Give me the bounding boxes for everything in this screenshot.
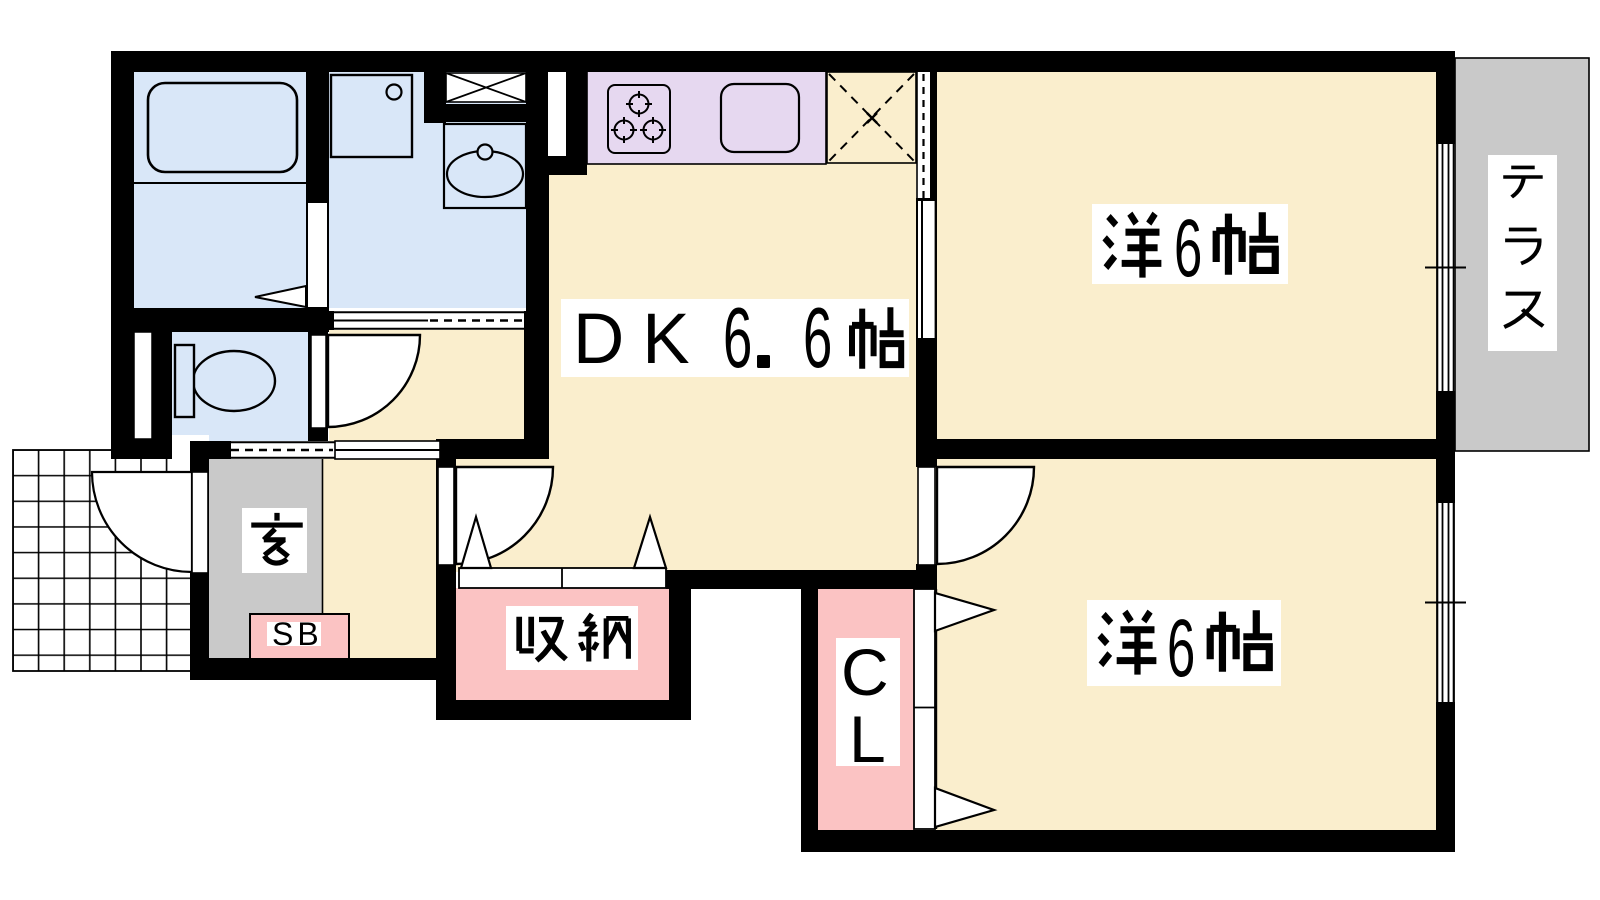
svg-text:SB: SB <box>272 616 323 652</box>
svg-text:6: 6 <box>1174 203 1202 294</box>
svg-text:DK: DK <box>573 300 708 379</box>
svg-text:6: 6 <box>1167 603 1195 694</box>
svg-text:6: 6 <box>803 290 832 385</box>
svg-text:6: 6 <box>723 290 752 385</box>
svg-text:L: L <box>849 702 886 776</box>
svg-text:C: C <box>841 635 889 709</box>
